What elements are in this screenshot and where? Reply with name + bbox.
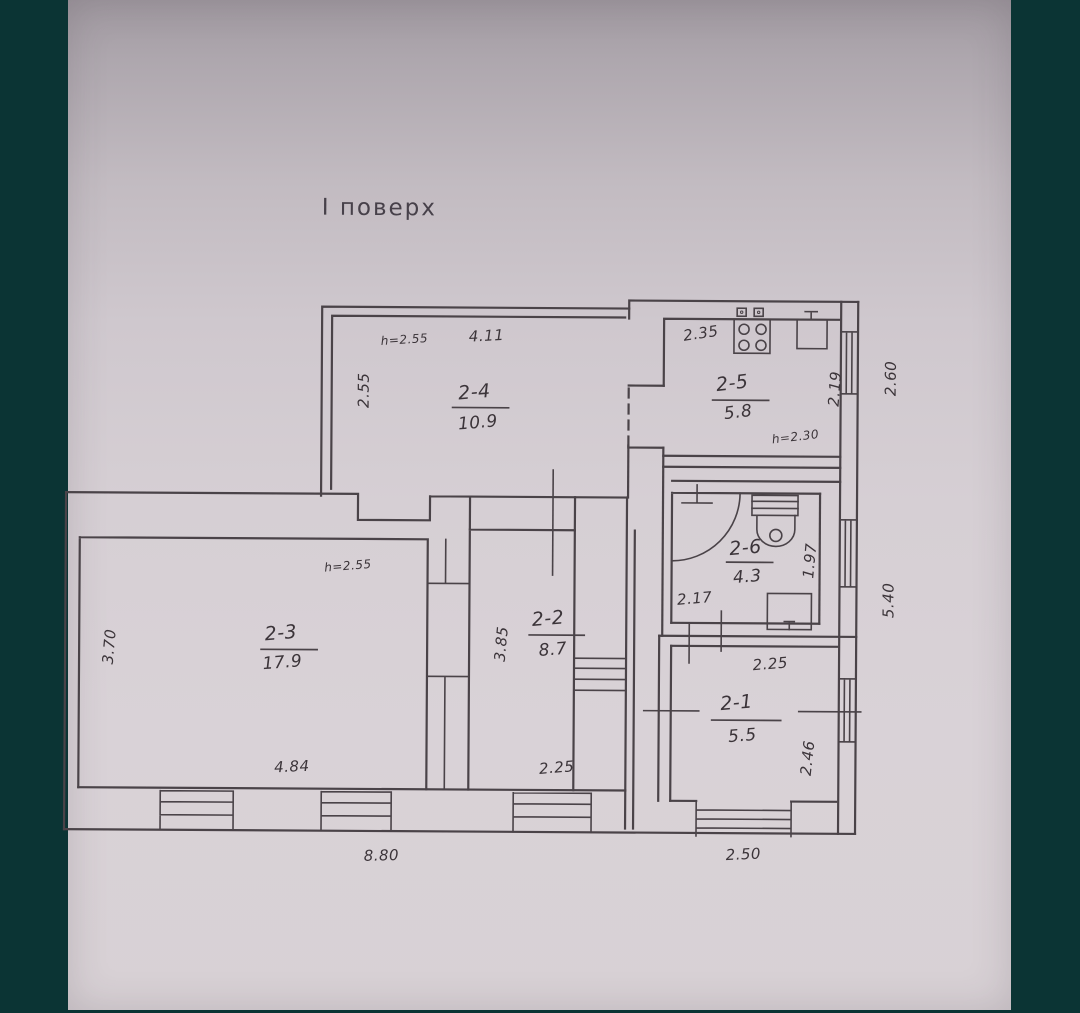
room-2-4-area: 10.9 <box>457 411 498 434</box>
room-2-2-depth-dim: 3.85 <box>491 625 512 662</box>
floor-plan-drawing: І поверх h=2.55 4.11 2.55 2-4 10.9 2.35 … <box>0 0 1080 1013</box>
room-2-5-area: 5.8 <box>723 401 754 424</box>
room-2-4-ceiling-height: h=2.55 <box>380 331 428 348</box>
overall-right-lower-dim: 5.40 <box>879 583 897 619</box>
room-2-6-area: 4.3 <box>732 566 762 588</box>
room-2-1-id: 2-1 <box>719 691 753 716</box>
overall-bottom-right-dim: 2.50 <box>725 845 761 865</box>
window <box>321 792 391 831</box>
overall-right-upper-dim: 2.60 <box>882 361 900 397</box>
room-2-2-width-dim: 2.25 <box>538 757 575 778</box>
room-2-2-area: 8.7 <box>538 639 568 661</box>
room-2-6-depth-dim: 1.97 <box>799 542 820 579</box>
window <box>696 801 791 837</box>
stove-icon <box>734 308 770 353</box>
room-2-6-id: 2-6 <box>728 536 762 561</box>
room-2-1-width-dim: 2.25 <box>752 653 789 674</box>
room-2-6-width-dim: 2.17 <box>676 588 713 609</box>
room-2-1-depth-dim: 2.46 <box>797 739 819 776</box>
room-2-5-depth-dim: 2.19 <box>824 370 845 407</box>
room-2-2-id: 2-2 <box>531 606 565 631</box>
window <box>839 679 856 742</box>
room-2-3-id: 2-3 <box>264 621 298 646</box>
floor-title: І поверх <box>322 195 437 222</box>
room-2-4-id: 2-4 <box>457 380 491 405</box>
room-2-1-area: 5.5 <box>727 725 757 747</box>
room-2-3-ceiling-height: h=2.55 <box>324 557 372 575</box>
room-2-3-width-dim: 4.84 <box>274 757 310 777</box>
room-2-3-area: 17.9 <box>262 651 303 674</box>
room-2-4-depth-dim: 2.55 <box>355 372 373 408</box>
room-2-5-width-dim: 2.35 <box>682 322 720 345</box>
window <box>840 520 857 587</box>
window <box>160 791 233 830</box>
room-2-3-depth-dim: 3.70 <box>99 628 120 665</box>
scanned-photo-backdrop: І поверх h=2.55 4.11 2.55 2-4 10.9 2.35 … <box>0 0 1080 1010</box>
room-2-5-ceiling-height: h=2.30 <box>771 427 820 446</box>
sink-icon <box>797 312 827 349</box>
floor-plan-paper: І поверх h=2.55 4.11 2.55 2-4 10.9 2.35 … <box>68 0 1011 1010</box>
room-2-4-width-dim: 4.11 <box>468 326 504 346</box>
overall-bottom-left-dim: 8.80 <box>363 846 399 865</box>
window <box>513 793 591 832</box>
room-2-5-id: 2-5 <box>715 370 750 396</box>
